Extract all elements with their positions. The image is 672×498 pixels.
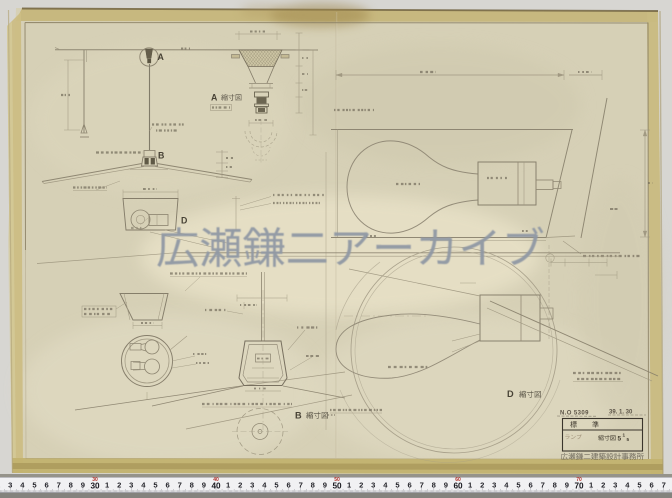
svg-text:B: B [295,410,302,420]
svg-text:7: 7 [541,481,545,490]
svg-text:8: 8 [311,481,315,490]
svg-text:6: 6 [649,481,653,490]
svg-text:3: 3 [492,481,496,490]
svg-text:1: 1 [623,433,626,438]
svg-text:2: 2 [480,481,484,490]
svg-text:8: 8 [190,481,194,490]
svg-text:50: 50 [334,477,340,483]
svg-text:60: 60 [455,477,461,483]
svg-text:3: 3 [613,481,617,490]
svg-text:9: 9 [323,481,327,490]
svg-text:9: 9 [202,481,206,490]
svg-text:2: 2 [238,481,242,490]
svg-text:7: 7 [662,481,666,490]
svg-text:40: 40 [213,477,219,483]
svg-text:6: 6 [44,481,48,490]
svg-text:30: 30 [90,482,100,491]
svg-text:6: 6 [407,481,411,490]
svg-text:2: 2 [601,481,605,490]
svg-text:9: 9 [81,481,85,490]
svg-text:D: D [507,389,514,399]
svg-text:A: A [158,52,165,62]
svg-text:39. 1. 30: 39. 1. 30 [609,410,633,416]
svg-text:A: A [211,93,218,103]
svg-text:7: 7 [420,481,424,490]
svg-text:3: 3 [129,481,133,490]
svg-text:9: 9 [565,481,569,490]
svg-text:7: 7 [178,481,182,490]
svg-text:40: 40 [211,482,221,491]
svg-text:30: 30 [92,477,98,483]
svg-text:B: B [158,151,164,161]
svg-text:D: D [181,216,187,226]
svg-text:5: 5 [627,437,630,442]
svg-text:50: 50 [332,482,342,491]
svg-text:8: 8 [432,481,436,490]
svg-text:9: 9 [444,481,448,490]
svg-text:7: 7 [57,481,61,490]
svg-text:3: 3 [250,481,254,490]
svg-text:60: 60 [453,482,463,491]
svg-text:3: 3 [8,481,12,490]
svg-text:6: 6 [528,481,532,490]
svg-text:5: 5 [618,436,622,443]
svg-text:70: 70 [574,482,584,491]
svg-text:6: 6 [165,481,169,490]
svg-text:8: 8 [69,481,73,490]
svg-text:N.O 5309: N.O 5309 [560,411,589,417]
svg-text:7: 7 [299,481,303,490]
svg-text:6: 6 [286,481,290,490]
svg-text:8: 8 [553,481,557,490]
svg-text:2: 2 [359,481,363,490]
svg-text:2: 2 [117,481,121,490]
svg-text:3: 3 [371,481,375,490]
svg-text:70: 70 [576,477,582,483]
